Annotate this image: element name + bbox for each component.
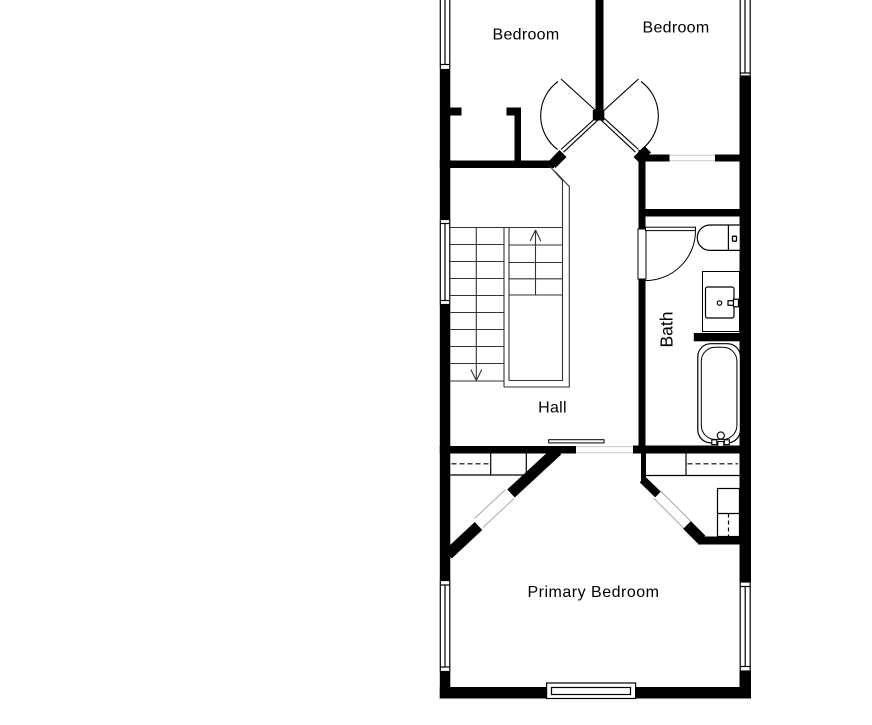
svg-text:Primary Bedroom: Primary Bedroom [528,584,660,601]
svg-text:Bedroom: Bedroom [492,27,559,44]
svg-text:Hall: Hall [538,400,567,417]
svg-text:Bath: Bath [657,312,677,348]
svg-text:Bedroom: Bedroom [642,20,709,37]
